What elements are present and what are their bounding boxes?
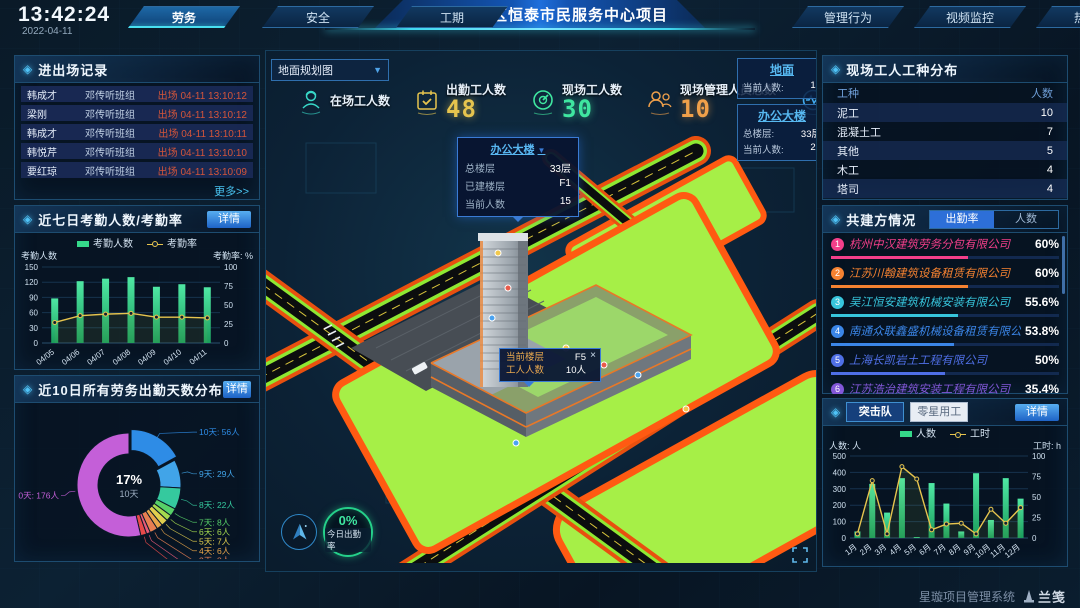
svg-text:10天: 10天 <box>119 489 138 499</box>
svg-text:60: 60 <box>29 309 38 318</box>
compass-icon[interactable] <box>281 514 317 550</box>
svg-text:5月: 5月 <box>903 542 918 557</box>
panel-title: 近七日考勤人数/考勤率 <box>38 210 183 229</box>
detail-button[interactable]: 详情 <box>207 211 251 228</box>
stat-attendance-workers: 出勤工人数 48 <box>414 81 506 120</box>
building-popup-title[interactable]: 办公大楼▼ <box>465 141 571 157</box>
axis-labels: 考勤人数考勤率: % <box>15 249 259 261</box>
bar-legend-swatch <box>900 431 912 437</box>
svg-text:50: 50 <box>1032 493 1041 502</box>
diamond-icon: ◈ <box>831 406 840 418</box>
partner-row: 2江苏川翰建筑设备租赁有限公司60% <box>831 262 1059 291</box>
close-icon[interactable]: × <box>590 350 596 361</box>
svg-text:8天: 22人: 8天: 22人 <box>199 500 235 510</box>
today-attendance-gauge: 0% 今日出勤率 <box>323 507 373 557</box>
calendar-check-icon <box>414 87 440 115</box>
days-donut-chart: 10天: 56人9天: 29人8天: 22人7天: 8人6天: 6人5天: 7人… <box>15 403 257 559</box>
svg-text:04/06: 04/06 <box>60 347 82 367</box>
svg-text:04/09: 04/09 <box>136 347 158 367</box>
panel-days-donut: ◈ 近10日所有劳务出勤天数分布 详情 10天: 56人9天: 29人8天: 2… <box>14 375 260 562</box>
stat-site-workers: 现场工人数 30 <box>530 81 622 120</box>
svg-text:4天: 6人: 4天: 6人 <box>199 546 231 556</box>
panel-title: 共建方情况 <box>846 210 916 229</box>
tab-劳务[interactable]: 劳务 <box>128 6 240 28</box>
ground-card-title[interactable]: 地面 <box>743 61 817 78</box>
system-brand: 星璇项目管理系统 <box>919 588 1015 605</box>
svg-text:0: 0 <box>34 339 39 348</box>
svg-text:25: 25 <box>224 320 233 329</box>
building-popup: 办公大楼▼ 总楼层33层 已建楼层F1 当前人数15 <box>457 137 579 217</box>
team-tabs: 突击队零星用工 <box>840 402 968 422</box>
map-area: 地面规划图▼ 在场工人数 <box>265 50 817 572</box>
svg-text:10天: 56人: 10天: 56人 <box>199 427 240 437</box>
logo-icon <box>1023 590 1035 604</box>
diamond-icon: ◈ <box>23 383 32 395</box>
svg-text:200: 200 <box>833 501 847 510</box>
svg-text:4月: 4月 <box>888 542 903 557</box>
partner-row: 1杭州中汉建筑劳务分包有限公司60% <box>831 233 1059 262</box>
svg-text:8月: 8月 <box>947 542 962 557</box>
line-legend-swatch <box>950 434 966 435</box>
team-tab-零星用工[interactable]: 零星用工 <box>910 402 968 422</box>
stat-onsite-workers: 在场工人数 <box>298 81 390 120</box>
svg-text:120: 120 <box>25 278 39 287</box>
svg-text:0: 0 <box>224 339 229 348</box>
svg-text:30: 30 <box>29 324 38 333</box>
topbar-tabs-left: 劳务安全工期 <box>128 6 508 28</box>
svg-text:04/10: 04/10 <box>162 347 184 367</box>
svg-text:400: 400 <box>833 468 847 477</box>
partners-tabs: 出勤率人数 <box>929 210 1059 229</box>
svg-text:50: 50 <box>224 301 233 310</box>
svg-text:500: 500 <box>833 452 847 461</box>
worker-type-row: 塔司4 <box>823 179 1067 198</box>
dashboard: 13:42:24 2022-04-11 劳务安全工期 苏州工业园区恒泰市民服务中… <box>0 0 1080 608</box>
svg-text:9天: 29人: 9天: 29人 <box>199 469 235 479</box>
svg-text:04/07: 04/07 <box>85 347 107 367</box>
entry-exit-row: 要红琼邓传听班组出场 04-11 13:10:09 <box>21 162 253 178</box>
svg-text:5天: 7人: 5天: 7人 <box>199 536 231 546</box>
svg-text:04/05: 04/05 <box>35 347 57 367</box>
svg-text:100: 100 <box>224 263 238 272</box>
panel-partners: ◈ 共建方情况 出勤率人数 1杭州中汉建筑劳务分包有限公司60%2江苏川翰建筑设… <box>822 205 1068 394</box>
tab-视频监控[interactable]: 视频监控 <box>914 6 1026 28</box>
entry-exit-list: 韩成才邓传听班组出场 04-11 13:10:12梁刚邓传听班组出场 04-11… <box>15 86 259 178</box>
attendance-combo-chart: 1501209060300100755025004/0504/0604/0704… <box>15 261 247 367</box>
popup-caret-icon: ▼ <box>538 146 546 155</box>
svg-text:0天: 176人: 0天: 176人 <box>18 490 59 500</box>
worker-type-table: 泥工10混凝土工7其他5木工4塔司4 <box>823 103 1067 198</box>
tab-热力图[interactable]: 热力图 <box>1036 6 1080 28</box>
diamond-icon: ◈ <box>23 63 32 75</box>
team-tab-突击队[interactable]: 突击队 <box>846 402 904 422</box>
partners-tab-出勤率[interactable]: 出勤率 <box>930 211 994 228</box>
partner-row: 6江苏浩治建筑安装工程有限公司35.4% <box>831 378 1059 394</box>
panel-attendance-chart: ◈ 近七日考勤人数/考勤率 详情 考勤人数 考勤率 考勤人数考勤率: % 150… <box>14 205 260 370</box>
panel-entry-exit: ◈ 进出场记录 韩成才邓传听班组出场 04-11 13:10:12梁刚邓传听班组… <box>14 55 260 200</box>
clock: 13:42:24 2022-04-11 <box>18 4 110 37</box>
svg-text:0: 0 <box>842 534 847 543</box>
entry-exit-row: 韩成才邓传听班组出场 04-11 13:10:11 <box>21 124 253 140</box>
date-text: 2022-04-11 <box>22 26 110 37</box>
svg-text:12月: 12月 <box>1003 542 1022 560</box>
svg-text:90: 90 <box>29 293 38 302</box>
worker-type-row: 泥工10 <box>823 103 1067 122</box>
people-icon <box>646 87 674 115</box>
detail-button[interactable]: 详情 <box>223 381 251 398</box>
svg-text:150: 150 <box>25 263 39 272</box>
panel-title: 近10日所有劳务出勤天数分布 <box>38 380 222 399</box>
entry-exit-row: 梁刚邓传听班组出场 04-11 13:10:12 <box>21 105 253 121</box>
svg-text:3月: 3月 <box>873 542 888 557</box>
worker-type-row: 木工4 <box>823 160 1067 179</box>
floor-tooltip: × 当前楼层F5 工人人数10人 <box>499 348 601 382</box>
map-layer-dropdown[interactable]: 地面规划图▼ <box>271 59 389 81</box>
chevron-down-icon: ▼ <box>373 65 382 75</box>
partner-row: 4南通众联鑫盛机械设备租赁有限公司53.8% <box>831 320 1059 349</box>
panel-worker-types: ◈ 现场工人工种分布 工种人数 泥工10混凝土工7其他5木工4塔司4 <box>822 55 1068 200</box>
banner-underline <box>325 28 755 30</box>
time-text: 13:42:24 <box>18 4 110 26</box>
partner-row: 3吴江恒安建筑机械安装有限公司55.6% <box>831 291 1059 320</box>
bar-legend-swatch <box>77 241 89 247</box>
worker-type-row: 混凝土工7 <box>823 122 1067 141</box>
entry-exit-row: 韩悦芹邓传听班组出场 04-11 13:10:10 <box>21 143 253 159</box>
table-header: 工种人数 <box>823 83 1067 103</box>
diamond-icon: ◈ <box>831 213 840 225</box>
partner-row: 5上海长凯岩土工程有限公司50% <box>831 349 1059 378</box>
axis-labels: 人数: 人工时: h <box>823 439 1067 450</box>
svg-text:1月: 1月 <box>843 542 858 557</box>
worker-type-row: 其他5 <box>823 141 1067 160</box>
logo: 兰笺 <box>1023 587 1066 606</box>
office-card-title[interactable]: 办公大楼 <box>743 107 817 124</box>
ground-card: 地面 当前人数:14 <box>737 58 817 99</box>
detail-button[interactable]: 详情 <box>1015 404 1059 421</box>
svg-text:7月: 7月 <box>932 542 947 557</box>
svg-text:300: 300 <box>833 485 847 494</box>
diamond-icon: ◈ <box>23 213 32 225</box>
tab-管理行为[interactable]: 管理行为 <box>792 6 904 28</box>
partners-list: 1杭州中汉建筑劳务分包有限公司60%2江苏川翰建筑设备租赁有限公司60%3吴江恒… <box>823 233 1067 394</box>
svg-text:25: 25 <box>1032 514 1041 523</box>
svg-text:100: 100 <box>833 518 847 527</box>
worker-icon <box>298 87 324 115</box>
team-combo-chart: 500400300200100010075502501月2月3月4月5月6月7月… <box>823 450 1055 562</box>
svg-text:7天: 8人: 7天: 8人 <box>199 517 231 527</box>
scrollbar[interactable] <box>1062 236 1065 294</box>
svg-text:75: 75 <box>1032 473 1041 482</box>
more-link[interactable]: 更多>> <box>15 181 259 199</box>
svg-text:6天: 6人: 6天: 6人 <box>199 527 231 537</box>
topbar-tabs-right: 管理行为视频监控热力图 <box>792 6 1080 28</box>
tab-安全[interactable]: 安全 <box>262 6 374 28</box>
partners-tab-人数[interactable]: 人数 <box>994 211 1058 228</box>
svg-text:04/08: 04/08 <box>111 347 133 367</box>
panel-team-chart: ◈ 突击队零星用工 详情 人数 工时 人数: 人工时: h 5004003002… <box>822 398 1068 567</box>
svg-text:100: 100 <box>1032 452 1046 461</box>
tab-工期[interactable]: 工期 <box>396 6 508 28</box>
panel-title: 现场工人工种分布 <box>846 60 958 79</box>
footer: 星璇项目管理系统 兰笺 <box>919 587 1066 606</box>
svg-text:75: 75 <box>224 282 233 291</box>
line-legend-swatch <box>147 244 163 245</box>
entry-exit-row: 韩成才邓传听班组出场 04-11 13:10:12 <box>21 86 253 102</box>
office-building-card: 办公大楼 总楼层:33层 当前人数:26 <box>737 104 817 161</box>
svg-text:3天: 8人: 3天: 8人 <box>199 555 231 559</box>
fullscreen-icon[interactable] <box>792 547 808 563</box>
chart-legend: 人数 工时 <box>823 426 1067 439</box>
svg-text:17%: 17% <box>116 472 142 487</box>
svg-text:6月: 6月 <box>917 542 932 557</box>
gauge-icon <box>530 87 556 115</box>
svg-text:04/11: 04/11 <box>188 347 209 366</box>
chart-legend: 考勤人数 考勤率 <box>15 235 259 249</box>
svg-text:0: 0 <box>1032 534 1037 543</box>
diamond-icon: ◈ <box>831 63 840 75</box>
panel-title: 进出场记录 <box>38 60 108 79</box>
svg-text:2月: 2月 <box>858 542 873 557</box>
